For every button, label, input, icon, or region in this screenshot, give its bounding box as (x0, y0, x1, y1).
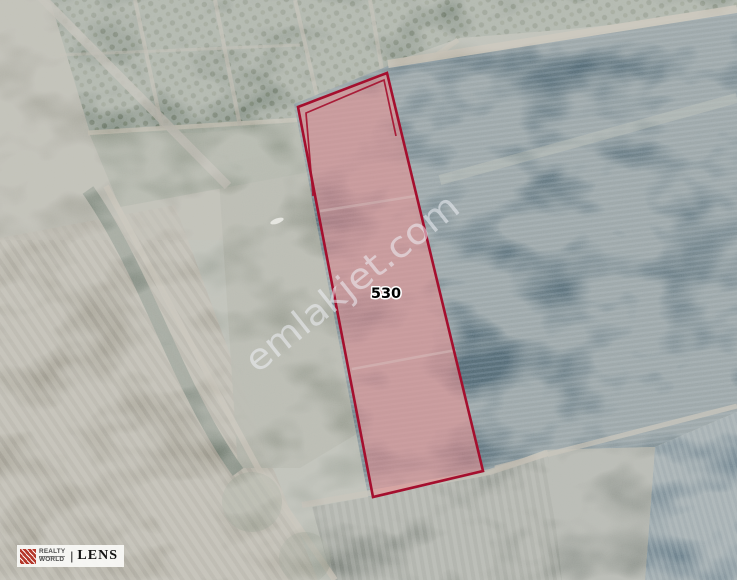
parcel-number-label: 530 (371, 286, 401, 302)
satellite-map: emlakjet.com 530 (0, 0, 737, 580)
realty-world-fan-icon (20, 549, 36, 564)
logo-office-name: LENS (77, 548, 118, 564)
logo-brand-stack: REALTY WORLD (39, 549, 65, 564)
logo-brand-world: WORLD (39, 557, 65, 564)
realty-world-lens-logo[interactable]: REALTY WORLD | LENS (17, 545, 124, 567)
logo-divider: | (70, 549, 73, 563)
listing-satellite-image[interactable]: emlakjet.com 530 REALTY WORLD | LENS (0, 0, 737, 580)
